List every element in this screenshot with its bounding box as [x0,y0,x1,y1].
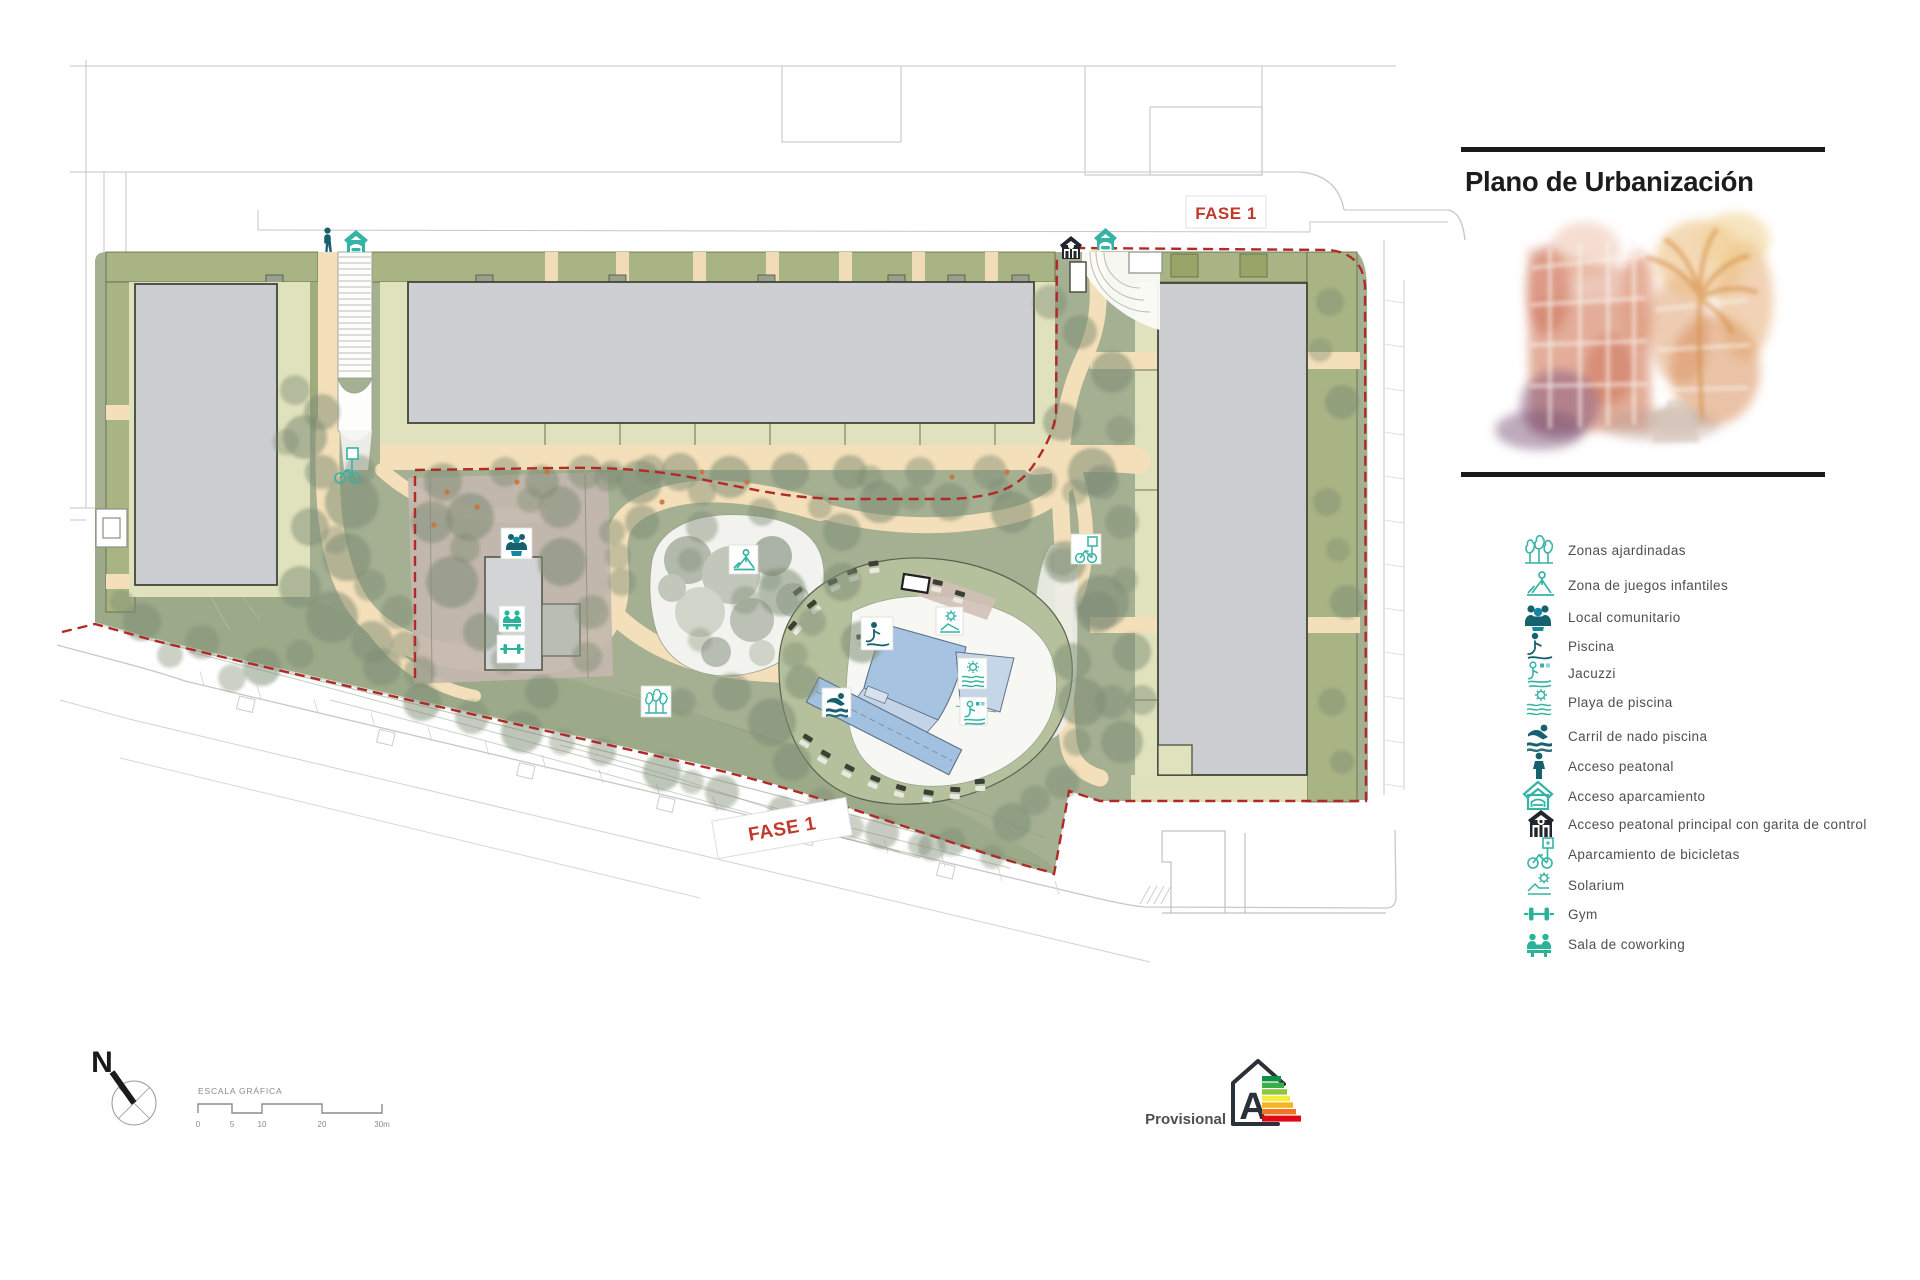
svg-text:FASE 1: FASE 1 [1195,204,1257,223]
svg-text:Local comunitario: Local comunitario [1568,610,1681,625]
svg-text:30m: 30m [374,1120,390,1129]
svg-text:Playa de piscina: Playa de piscina [1568,695,1673,710]
svg-text:Zona de juegos infantiles: Zona de juegos infantiles [1568,578,1728,593]
svg-text:ESCALA GRÁFICA: ESCALA GRÁFICA [198,1086,282,1096]
svg-text:0: 0 [196,1120,201,1129]
svg-text:5: 5 [230,1120,235,1129]
svg-text:Aparcamiento de bicicletas: Aparcamiento de bicicletas [1568,847,1740,862]
svg-text:Provisional: Provisional [1145,1111,1226,1128]
svg-text:N: N [91,1046,113,1079]
svg-text:Solarium: Solarium [1568,878,1624,893]
svg-text:Sala de coworking: Sala de coworking [1568,937,1685,952]
svg-text:Acceso peatonal: Acceso peatonal [1568,759,1674,774]
svg-text:10: 10 [258,1120,267,1129]
svg-text:Plano de Urbanización: Plano de Urbanización [1465,166,1754,197]
svg-text:Gym: Gym [1568,907,1598,922]
svg-text:Acceso peatonal principal con: Acceso peatonal principal con garita de … [1568,817,1867,832]
svg-text:Piscina: Piscina [1568,639,1614,654]
svg-text:Jacuzzi: Jacuzzi [1568,666,1616,681]
svg-text:Zonas ajardinadas: Zonas ajardinadas [1568,543,1686,558]
svg-text:Acceso aparcamiento: Acceso aparcamiento [1568,789,1705,804]
svg-text:Carril de nado piscina: Carril de nado piscina [1568,729,1707,744]
svg-text:20: 20 [318,1120,327,1129]
